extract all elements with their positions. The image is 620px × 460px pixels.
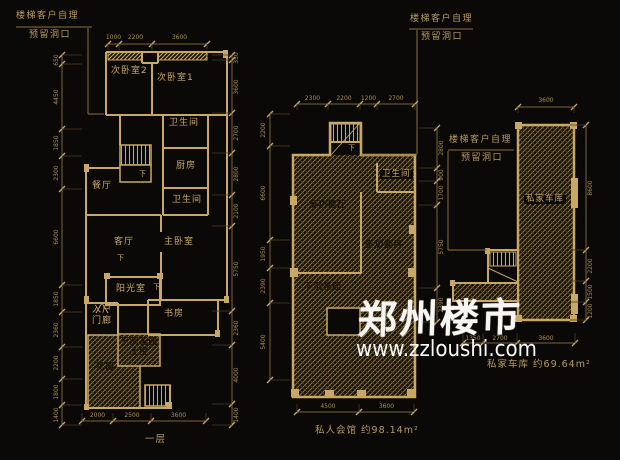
dim-label-club-top: 2300 [305, 96, 320, 102]
down-arrow-label: 下 [139, 171, 146, 178]
room-label-study: 书房 [164, 310, 184, 319]
room-label-club-hall: 多功能厅 [309, 201, 347, 210]
down-arrow-label: 下 [153, 284, 160, 291]
dim-label-floor1-left: 4450 [54, 89, 60, 104]
dim-label-floor1-right: 5750 [234, 261, 240, 276]
dim-label-garage-right: 1500 [588, 284, 594, 299]
room-label-club-room: 多功能房 [365, 241, 403, 250]
dim-label-club-left: 2390 [261, 278, 267, 293]
dim-label-club-right: 5750 [439, 239, 445, 254]
dim-label-floor1-right: 1400 [234, 407, 240, 422]
room-label-kitchen: 厨房 [176, 162, 196, 171]
dim-label-floor1-right: 2700 [234, 125, 240, 140]
dim-label-club-left: 5400 [261, 334, 267, 349]
dim-label-floor1-bottom: 2000 [90, 413, 105, 419]
room-label-club-bath: 卫生间 [380, 170, 413, 179]
room-label-bath-lower: 卫生间 [172, 196, 202, 205]
callout-club-line1: 楼梯客户自理 [410, 15, 473, 24]
dim-label-club-left: 1950 [261, 246, 267, 261]
dim-label-floor1-top: 3600 [172, 35, 187, 41]
dim-label-club-bottom: 3600 [379, 404, 394, 410]
room-label-bedroom1: 次卧室1 [157, 74, 194, 83]
dim-label-floor1-left: 1850 [54, 135, 60, 150]
callout-garage-line2: 预留洞口 [461, 154, 503, 163]
watermark-url: www.zzloushi.com [356, 337, 537, 362]
dim-label-club-left: 2200 [261, 122, 267, 137]
dim-label-floor1-left: 650 [54, 54, 60, 65]
dim-label-club-bottom: 4500 [320, 404, 335, 410]
room-label-entry-2: 门廊 [92, 317, 112, 326]
room-label-sunken-1: 下沉花园 [120, 338, 158, 347]
dim-label-garage-top: 3600 [538, 98, 553, 104]
dim-label-floor1-left: 1850 [54, 291, 60, 306]
dim-label-garage-right: 1200 [588, 303, 594, 318]
dim-label-floor1-bottom: 3600 [171, 413, 186, 419]
dim-label-floor1-right: 2800 [234, 166, 240, 181]
callout-garage-line1: 楼梯客户自理 [449, 136, 512, 145]
dim-label-floor1-left: 2200 [54, 355, 60, 370]
dim-label-floor1-left: 6600 [54, 229, 60, 244]
dim-label-club-right: 1700 [439, 185, 445, 200]
club-area-label: 私人会馆 约98.14m² [315, 426, 419, 436]
floor1-footer-label: 一层 [145, 435, 166, 445]
room-label-entry-1: 入户 [92, 306, 112, 315]
dim-label-garage-right: 2200 [588, 258, 594, 273]
dim-label-floor1-right: 2100 [234, 203, 240, 218]
room-label-garden: 花园 [96, 363, 115, 372]
dim-label-club-right: 900 [439, 169, 445, 180]
dim-label-floor1-left: 2360 [54, 322, 60, 337]
dim-label-club-right: 2800 [439, 140, 445, 155]
dim-label-floor1-top: 1000 [106, 35, 121, 41]
dim-label-floor1-left: 2300 [54, 165, 60, 180]
callout-floor1-line1: 楼梯客户自理 [16, 12, 79, 21]
callout-club-line2: 预留洞口 [421, 33, 463, 42]
room-label-sunroom: 阳光室 [116, 285, 146, 294]
dim-label-garage-right: 8600 [588, 180, 594, 195]
floorplan-drawing [0, 0, 620, 460]
room-label-master: 主卧室 [164, 238, 194, 247]
dim-label-floor1-left: 1400 [54, 407, 60, 422]
floorplan-sheet: 楼梯客户自理 预留洞口 楼梯客户自理 预留洞口 楼梯客户自理 预留洞口 一层 私… [0, 0, 620, 460]
room-label-bedroom2: 次卧室2 [111, 67, 148, 76]
down-arrow-label: 下 [117, 255, 124, 262]
dim-label-floor1-bottom: 2500 [124, 413, 139, 419]
dim-label-floor1-right: 3600 [234, 79, 240, 94]
dim-label-floor1-right: 2360 [234, 320, 240, 335]
dim-label-garage-bottom: 3600 [538, 336, 553, 342]
room-label-sunken-2: 上空 [130, 348, 149, 357]
dim-label-club-top: 1200 [361, 96, 376, 102]
room-label-living: 客厅 [114, 238, 134, 247]
down-arrow-label: 下 [348, 145, 355, 152]
dim-label-floor1-left: 1800 [54, 384, 60, 399]
dim-label-club-top: 2200 [336, 96, 351, 102]
room-label-garage: 私家车库 [524, 195, 566, 204]
callout-floor1-line2: 预留洞口 [29, 31, 71, 40]
room-label-dining: 餐厅 [92, 182, 112, 191]
dim-label-club-left: 6600 [261, 185, 267, 200]
dim-label-floor1-top: 2200 [128, 35, 143, 41]
dim-label-floor1-right: 4000 [234, 367, 240, 382]
room-label-bath-upper: 卫生间 [169, 119, 199, 128]
dim-label-club-top: 2700 [388, 96, 403, 102]
dim-label-floor1-right: 350 [234, 52, 240, 63]
room-label-club-sunken: 下沉花园 [304, 283, 342, 292]
